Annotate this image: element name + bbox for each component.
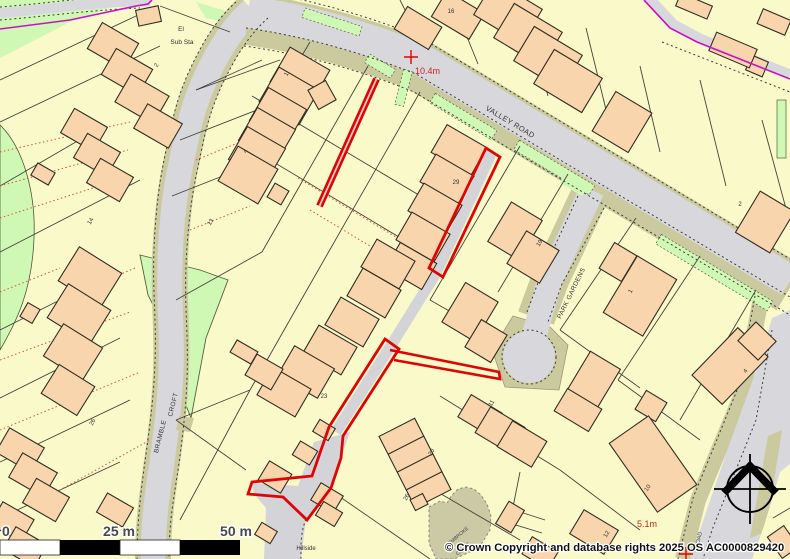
svg-text:16: 16 [448, 9, 455, 15]
svg-text:0: 0 [2, 523, 10, 539]
svg-text:25 m: 25 m [103, 523, 135, 539]
svg-text:50 m: 50 m [220, 523, 252, 539]
svg-text:23: 23 [321, 394, 328, 400]
svg-text:5.1m: 5.1m [637, 519, 657, 529]
svg-text:Sub Sta: Sub Sta [170, 39, 194, 46]
svg-text:© Crown Copyright and database: © Crown Copyright and database rights 20… [445, 542, 784, 554]
svg-text:29: 29 [453, 180, 460, 186]
svg-text:10.4m: 10.4m [415, 66, 440, 76]
svg-text:El: El [178, 26, 184, 33]
svg-text:Hillside: Hillside [296, 546, 316, 552]
